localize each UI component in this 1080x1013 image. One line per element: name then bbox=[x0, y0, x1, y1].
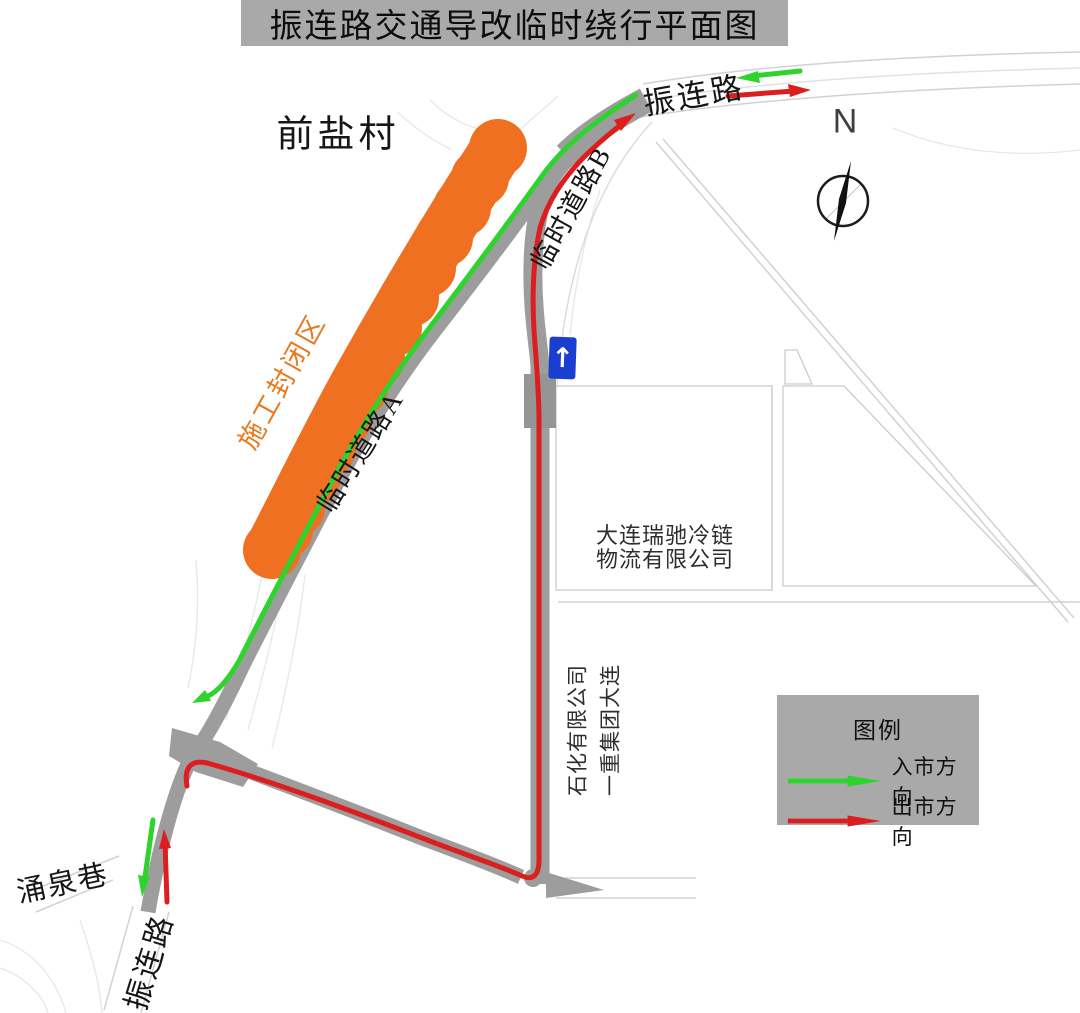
inbound-arrow-icon bbox=[785, 773, 884, 789]
legend-title: 图例 bbox=[853, 711, 903, 745]
village-label: 前盐村 bbox=[277, 116, 400, 157]
legend: 图例 入市方向 出市方向 bbox=[777, 695, 979, 825]
petrochem-company-label: 一重集团大连 石化有限公司 bbox=[561, 664, 626, 796]
legend-item-outbound: 出市方向 bbox=[785, 791, 975, 851]
one-way-sign-icon: ↑ bbox=[548, 337, 576, 380]
traffic-detour-map: 振连路交通导改临时绕行平面图 前盐村 施工封闭区 临时道路A 临时道路B 振连路… bbox=[0, 0, 1080, 1013]
outbound-arrow-icon bbox=[785, 813, 884, 829]
map-canvas bbox=[0, 0, 1080, 1013]
compass-icon bbox=[818, 161, 868, 241]
one-way-arrow-glyph: ↑ bbox=[551, 342, 575, 374]
legend-outbound-label: 出市方向 bbox=[892, 791, 975, 851]
map-title-bar: 振连路交通导改临时绕行平面图 bbox=[241, 0, 788, 46]
coldchain-company-label: 大连瑞驰冷链 物流有限公司 bbox=[596, 524, 734, 572]
map-title: 振连路交通导改临时绕行平面图 bbox=[270, 0, 760, 47]
north-label: N bbox=[833, 103, 858, 140]
